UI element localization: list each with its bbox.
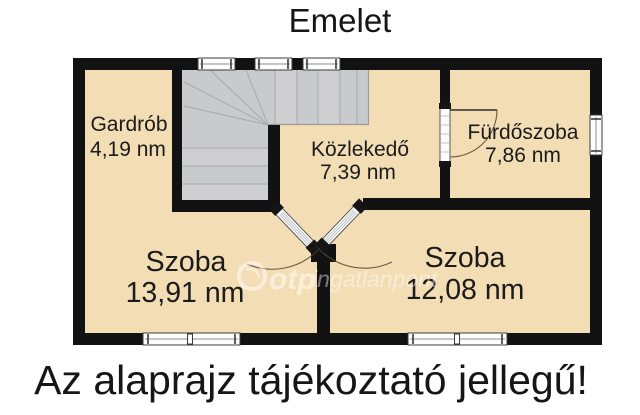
window-symbol-top-1 — [198, 58, 235, 70]
room-area-szoba-left: 13,91 nm — [126, 277, 245, 309]
floor-plan-page: Emelet — [0, 0, 640, 415]
room-label-kozlekedo: Közlekedő — [311, 138, 409, 161]
room-label-furdoszoba: Fürdőszoba — [468, 121, 579, 144]
room-area-furdoszoba: 7,86 nm — [485, 144, 561, 167]
watermark: otp ingatlanpont — [239, 263, 439, 296]
wall-bathroom-left-lower — [440, 163, 450, 210]
window-symbol-top-2 — [255, 58, 292, 70]
room-area-gardrob: 4,19 nm — [90, 138, 166, 161]
room-area-kozlekedo: 7,39 nm — [320, 161, 396, 184]
window-symbol-bathroom — [590, 115, 602, 155]
watermark-text: ingatlanpont — [312, 266, 439, 292]
floor-plan: Gardrób 4,19 nm Közlekedő 7,39 nm Fürdős… — [0, 0, 640, 415]
wall-hall-rooms — [363, 198, 590, 210]
watermark-logo-text: otp — [269, 263, 316, 296]
disclaimer-text: Az alaprajz tájékoztató jellegű! — [34, 356, 588, 404]
wall-stairs-hall — [268, 125, 280, 212]
wall-bathroom-left-upper — [440, 70, 450, 107]
window-symbol-room-left — [143, 333, 240, 345]
room-label-gardrob: Gardrób — [90, 113, 167, 136]
wall-gardrob-stairs — [172, 70, 182, 212]
wall-stairs-bottom — [172, 200, 280, 212]
window-symbol-top-3 — [303, 58, 340, 70]
room-label-szoba-left: Szoba — [146, 246, 227, 278]
window-symbol-room-right — [408, 333, 507, 345]
